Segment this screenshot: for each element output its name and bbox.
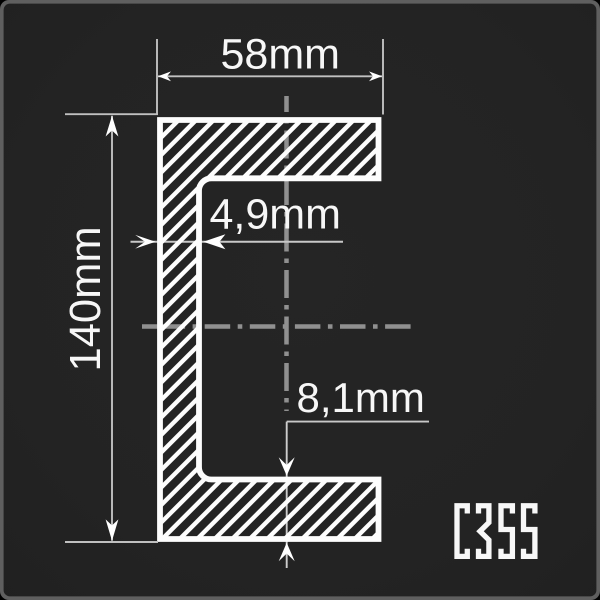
svg-text:58mm: 58mm xyxy=(221,31,340,79)
svg-text:4,9mm: 4,9mm xyxy=(210,191,341,239)
svg-text:8,1mm: 8,1mm xyxy=(297,374,425,421)
svg-text:140mm: 140mm xyxy=(62,226,110,371)
